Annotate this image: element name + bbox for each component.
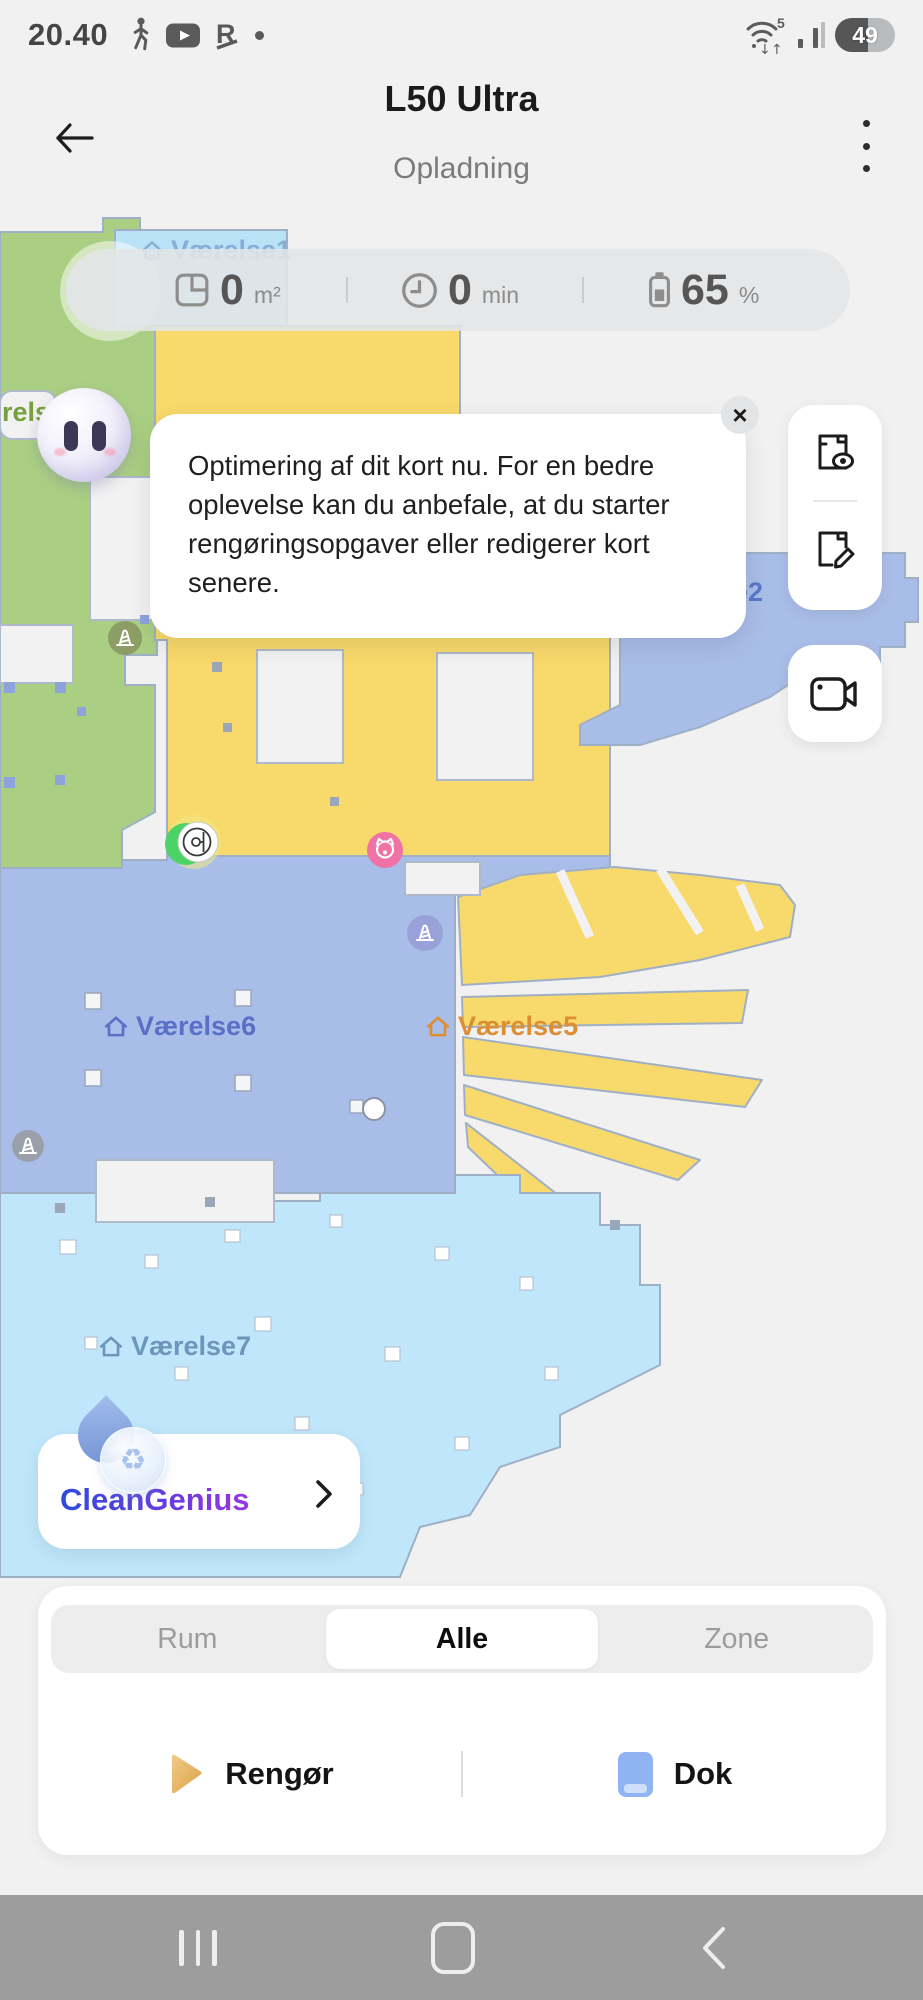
cleaning-stats-bar: 0m² 0min 65% — [66, 249, 850, 331]
r-badge-icon: R — [214, 19, 241, 51]
close-notice-button[interactable]: × — [721, 396, 759, 434]
recycle-glyph: ♻ — [120, 1443, 147, 1478]
cleangenius-icon: ♻ — [60, 1397, 170, 1497]
action-row: Rengør Dok — [38, 1714, 886, 1834]
play-icon — [165, 1752, 205, 1796]
back-chevron-icon — [701, 1926, 727, 1970]
map-view-icon — [810, 428, 860, 478]
status-notification-icons: R — [130, 17, 264, 53]
map-view-button[interactable] — [788, 405, 882, 500]
battery-level-icon — [648, 272, 671, 308]
map-edit-button[interactable] — [788, 502, 882, 597]
tab-alle[interactable]: Alle — [326, 1609, 599, 1669]
tab-zone[interactable]: Zone — [600, 1605, 873, 1673]
status-time: 20.40 — [28, 17, 108, 53]
signal-strength-icon — [798, 22, 825, 48]
room-label-vaerelse6[interactable]: Værelse6 — [103, 1011, 256, 1042]
assistant-mascot[interactable] — [37, 388, 131, 482]
room-label-vaerelse7[interactable]: Værelse7 — [98, 1331, 251, 1362]
pet-marker-icon[interactable] — [367, 832, 403, 868]
stat-battery: 65% — [648, 249, 759, 331]
robot-vacuum-app-screen: 20.40 R 5 ↓ ↑ 49 L5 — [0, 0, 923, 2000]
device-status-subtitle: Opladning — [0, 152, 923, 186]
area-icon — [174, 272, 210, 308]
mode-segmented-control: Rum Alle Zone — [51, 1605, 873, 1673]
close-icon: × — [732, 400, 747, 431]
obstacle-marker-icon[interactable] — [407, 915, 443, 951]
battery-percent: 49 — [835, 18, 895, 52]
notice-text: Optimering af dit kort nu. For en bedre … — [188, 450, 670, 598]
obstacle-marker-icon[interactable] — [12, 1130, 44, 1162]
tab-rum[interactable]: Rum — [51, 1605, 324, 1673]
stat-duration: 0min — [401, 249, 519, 331]
clock-icon — [401, 272, 438, 309]
stat-area: 0m² — [174, 249, 281, 331]
svg-text:5: 5 — [777, 15, 785, 31]
map-optimization-notice: Optimering af dit kort nu. For en bedre … — [150, 414, 746, 638]
youtube-icon — [166, 23, 200, 48]
clean-button[interactable]: Rengør — [38, 1752, 461, 1796]
floor-map[interactable] — [0, 185, 923, 1586]
status-bar: 20.40 R 5 ↓ ↑ 49 — [0, 0, 923, 70]
dock-icon — [617, 1751, 654, 1798]
clean-control-panel: Rum Alle Zone Rengør Dok — [38, 1586, 886, 1855]
android-nav-bar — [0, 1895, 923, 2000]
map-tools-panel — [788, 405, 882, 610]
recents-button[interactable] — [158, 1895, 238, 2000]
walking-person-icon — [130, 17, 152, 53]
wifi-icon: 5 ↓ ↑ — [744, 15, 788, 55]
page-title: L50 Ultra — [0, 78, 923, 120]
camera-button[interactable] — [788, 645, 882, 742]
dock-button[interactable]: Dok — [463, 1751, 886, 1798]
map-area[interactable]: Værelse1 rels e2 Værelse6 Værelse5 Værel… — [0, 185, 923, 1586]
chevron-right-icon — [314, 1478, 334, 1515]
small-object-marker — [363, 1098, 385, 1120]
room-label-vaerelse5[interactable]: Værelse5 — [425, 1011, 578, 1042]
svg-text:↓: ↓ — [759, 42, 771, 55]
obstacle-marker-icon[interactable] — [108, 621, 142, 655]
dock-label: Dok — [674, 1756, 733, 1792]
status-system-icons: 5 ↓ ↑ 49 — [744, 15, 895, 55]
battery-indicator: 49 — [835, 18, 895, 52]
more-notifications-dot-icon — [255, 31, 264, 40]
overflow-menu-button[interactable] — [846, 120, 886, 172]
svg-text:↑: ↑ — [771, 42, 783, 55]
home-button[interactable] — [413, 1895, 493, 2000]
nav-back-button[interactable] — [674, 1895, 754, 2000]
map-edit-icon — [810, 525, 860, 575]
video-camera-icon — [809, 674, 861, 714]
clean-label: Rengør — [225, 1756, 334, 1792]
